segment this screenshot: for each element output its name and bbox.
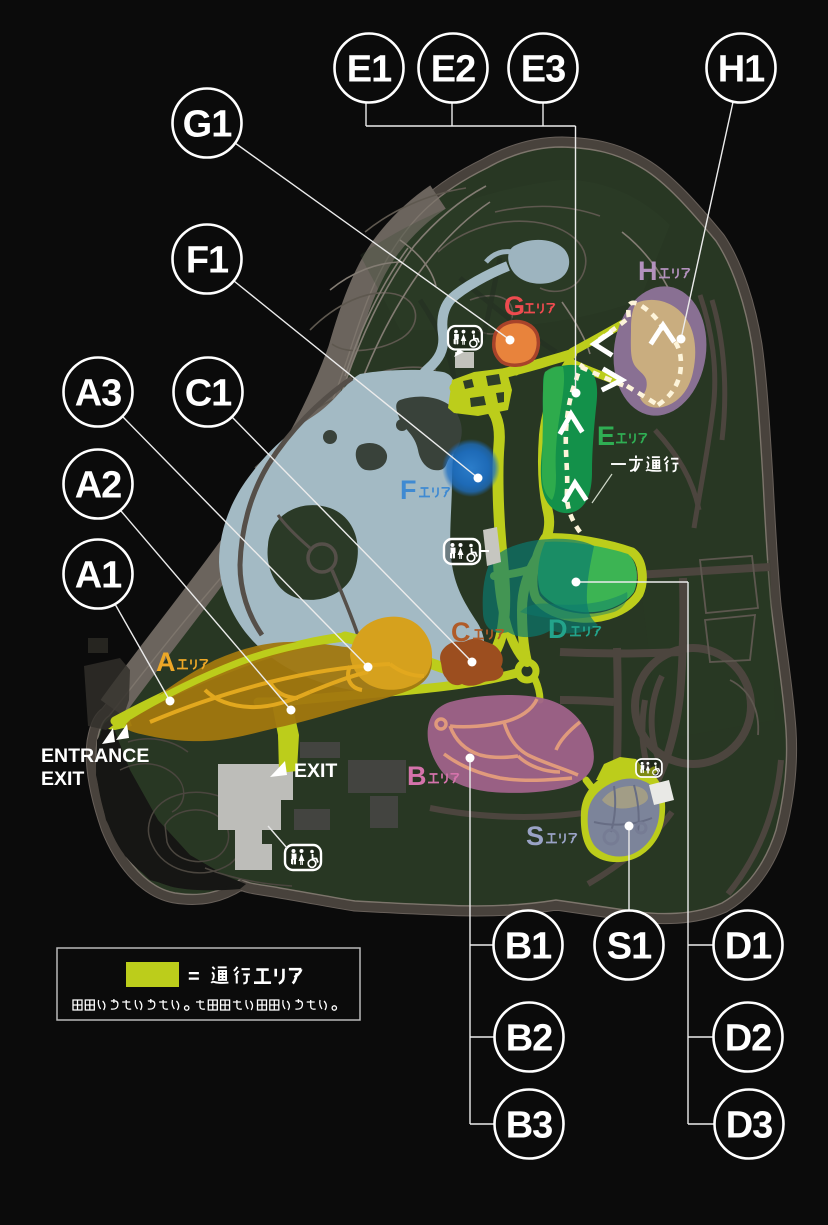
svg-text:=: = xyxy=(188,966,200,988)
svg-text:EXIT: EXIT xyxy=(294,760,337,782)
svg-text:D: D xyxy=(548,614,568,644)
svg-text:C1: C1 xyxy=(185,373,232,415)
svg-text:E1: E1 xyxy=(347,49,392,91)
svg-text:B1: B1 xyxy=(505,926,552,968)
svg-text:EXIT: EXIT xyxy=(41,768,84,790)
svg-text:D2: D2 xyxy=(725,1018,772,1060)
svg-text:H1: H1 xyxy=(718,49,765,91)
svg-text:F: F xyxy=(400,475,417,505)
svg-text:ENTRANCE: ENTRANCE xyxy=(41,745,149,767)
svg-text:E2: E2 xyxy=(431,49,475,91)
svg-text:B: B xyxy=(407,761,427,791)
svg-text:A3: A3 xyxy=(75,373,122,415)
svg-text:D3: D3 xyxy=(726,1105,773,1147)
svg-text:G: G xyxy=(504,291,525,321)
svg-text:E: E xyxy=(597,421,615,451)
svg-text:F1: F1 xyxy=(186,240,229,282)
svg-text:H: H xyxy=(638,256,658,286)
svg-text:C: C xyxy=(451,617,471,647)
svg-text:A2: A2 xyxy=(75,465,122,507)
svg-text:S1: S1 xyxy=(607,926,652,968)
svg-text:G1: G1 xyxy=(183,104,233,146)
svg-text:B3: B3 xyxy=(506,1105,553,1147)
svg-text:A: A xyxy=(156,647,176,677)
svg-text:D1: D1 xyxy=(725,926,772,968)
svg-text:E3: E3 xyxy=(521,49,565,91)
svg-text:A1: A1 xyxy=(75,555,122,597)
svg-text:S: S xyxy=(526,821,544,851)
svg-text:B2: B2 xyxy=(506,1018,553,1060)
